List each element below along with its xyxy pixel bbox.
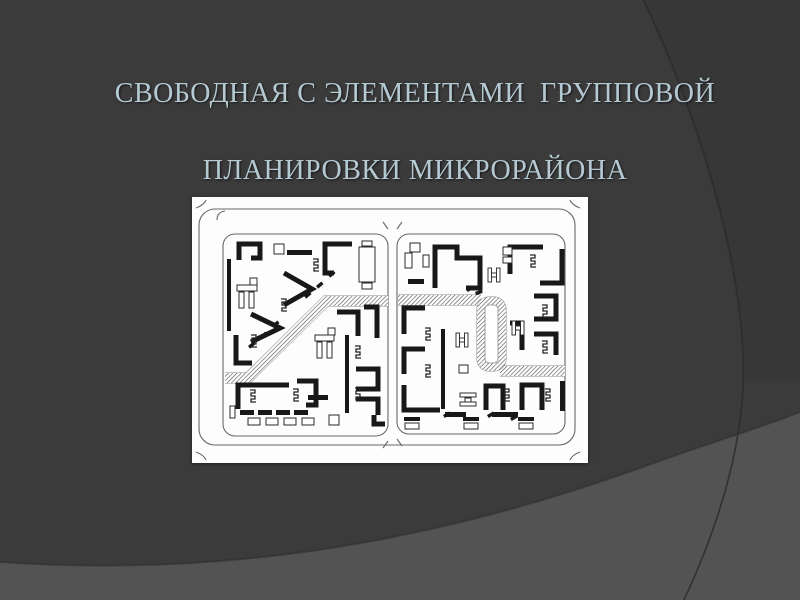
title-line-1: СВОБОДНАЯ С ЭЛЕМЕНТАМИ ГРУППОВОЙ bbox=[115, 78, 715, 109]
figure-panel bbox=[192, 197, 588, 463]
title-line-2: ПЛАНИРОВКИ МИКРОРАЙОНА bbox=[203, 155, 628, 186]
presentation-slide: СВОБОДНАЯ С ЭЛЕМЕНТАМИ ГРУППОВОЙ ПЛАНИРО… bbox=[0, 0, 800, 600]
microdistrict-plan-diagram bbox=[192, 197, 588, 463]
